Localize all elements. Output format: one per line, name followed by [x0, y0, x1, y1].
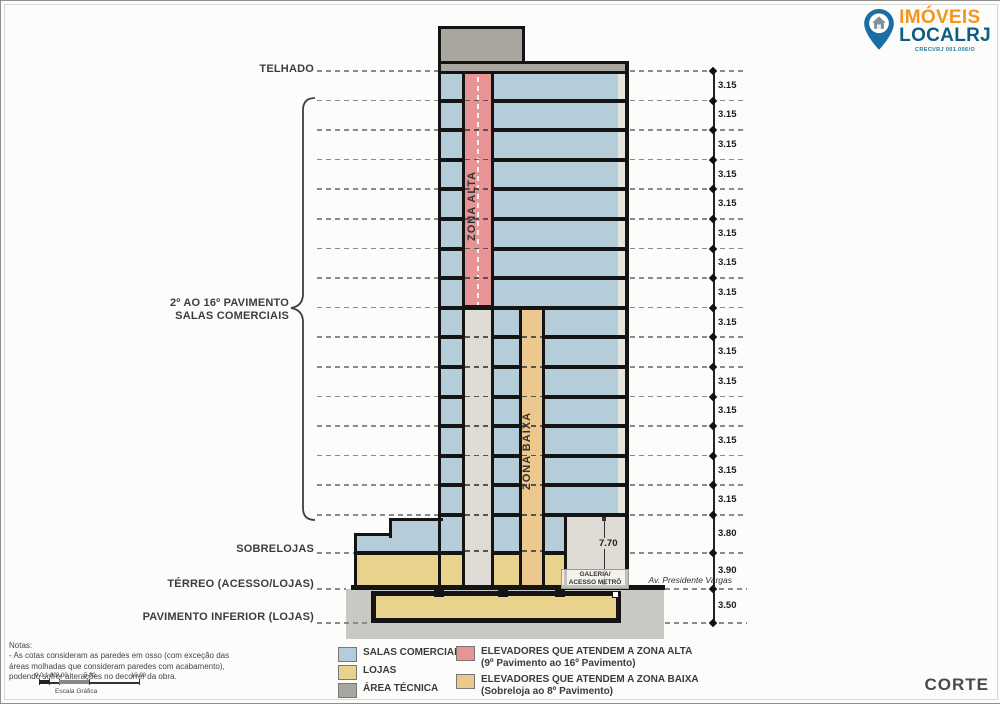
- legend-sub-zona-baixa: (Sobreloja ao 8º Pavimento): [481, 686, 699, 698]
- leader-line: [317, 552, 354, 554]
- slab-dash-shaft: [465, 277, 491, 279]
- legend-swatch-zona-baixa: [456, 674, 475, 689]
- dimension-label: 3.15: [718, 228, 750, 240]
- floor-slab: [545, 424, 625, 428]
- terreo-slab: [354, 551, 462, 555]
- leader-line: [630, 514, 747, 516]
- tower-right-wall: [625, 61, 629, 587]
- sobreloja-tower-fill: [441, 515, 564, 553]
- pavimento-inferior-box: [371, 591, 621, 623]
- floor-slab: [545, 483, 625, 487]
- floor-slab: [494, 513, 519, 517]
- section-drawing-sheet: IMÓVEIS LOCALRJ CRECI/RJ 001.006/O TELHA…: [0, 0, 1000, 704]
- scale-tick-2: 2.00: [56, 673, 68, 679]
- floor-slab: [545, 365, 625, 369]
- floor-slab: [441, 483, 462, 487]
- leader-line: [317, 70, 438, 72]
- leader-line: [317, 588, 346, 590]
- leader-line: [630, 218, 747, 220]
- leader-line: [630, 396, 747, 398]
- leader-line: [665, 622, 747, 624]
- legend-item-zona-baixa: ELEVADORES QUE ATENDEM A ZONA BAIXA (Sob…: [456, 674, 699, 698]
- floor-slab: [494, 276, 625, 280]
- dimension-label: 3.15: [718, 494, 750, 506]
- floor-slab: [494, 128, 625, 132]
- floor-slab: [441, 365, 462, 369]
- leader-line: [630, 129, 747, 131]
- scale-tick-1: 1.00: [45, 673, 57, 679]
- tower-left-wall: [438, 61, 441, 587]
- dimension-tick: [709, 67, 717, 75]
- label-terreo: TÉRREO (ACESSO/LOJAS): [121, 578, 314, 590]
- telhado-roof-slab: [438, 61, 629, 74]
- floor-slab: [494, 217, 625, 221]
- leader-line: [317, 396, 438, 398]
- floor-slab: [441, 99, 462, 103]
- leader-line: [317, 307, 438, 309]
- legend-sub-zona-alta: (9º Pavimento ao 16º Pavimento): [481, 658, 692, 670]
- dimension-label: 3.15: [718, 139, 750, 151]
- leader-line: [317, 188, 438, 190]
- dimension-label: 3.15: [718, 465, 750, 477]
- floor-slab: [441, 187, 462, 191]
- legend-swatch-area-tecnica: [338, 683, 357, 698]
- dimension-label: 3.15: [718, 376, 750, 388]
- dimension-label: 3.90: [718, 565, 750, 577]
- label-pavimentos-line1: 2º AO 16º PAVIMENTO: [121, 297, 289, 310]
- column-footing: [555, 590, 565, 597]
- leader-line: [630, 366, 747, 368]
- leader-line: [317, 159, 438, 161]
- floor-slab: [494, 158, 625, 162]
- legend-item-zona-alta: ELEVADORES QUE ATENDEM A ZONA ALTA (9º P…: [456, 646, 692, 670]
- legend-label-area-tecnica: ÁREA TÉCNICA: [363, 683, 438, 695]
- floor-slab: [441, 424, 462, 428]
- slab-dash-shaft: [522, 366, 542, 368]
- slab-dash-shaft: [465, 100, 491, 102]
- dimension-tick: [709, 452, 717, 460]
- floor-slab: [441, 454, 462, 458]
- floor-slab: [494, 483, 519, 487]
- floor-slab: [441, 335, 462, 339]
- galeria-dim-tick-top: [602, 517, 606, 521]
- leader-line: [317, 425, 438, 427]
- shaft-alta-right-wall: [491, 74, 494, 587]
- dimension-label: 3.15: [718, 80, 750, 92]
- leader-line: [630, 336, 747, 338]
- column-footing: [498, 590, 508, 597]
- floor-slab: [494, 335, 519, 339]
- leader-line: [317, 484, 438, 486]
- floor-slab: [545, 335, 625, 339]
- dimension-tick: [709, 511, 717, 519]
- dimension-label: 3.15: [718, 257, 750, 269]
- label-sobrelojas: SOBRELOJAS: [201, 543, 314, 555]
- sobreloja-step-upper: [392, 521, 441, 553]
- leader-line: [630, 159, 747, 161]
- dimension-tick: [709, 585, 717, 593]
- dimension-tick: [709, 392, 717, 400]
- leader-line: [317, 218, 438, 220]
- slab-dash-shaft: [465, 396, 491, 398]
- floor-slab: [494, 395, 519, 399]
- leader-line: [317, 100, 438, 102]
- slab-dash-shaft: [465, 425, 491, 427]
- dimension-label: 3.15: [718, 435, 750, 447]
- slab-dash-shaft: [465, 550, 491, 552]
- leader-line: [665, 588, 747, 590]
- floor-slab: [545, 395, 625, 399]
- street-label: Av. Presidente Vargas: [602, 575, 732, 585]
- label-pavimentos-line2: SALAS COMERCIAIS: [121, 310, 289, 323]
- leader-line: [317, 129, 438, 131]
- legend-label-lojas: LOJAS: [363, 665, 396, 677]
- dimension-tick: [709, 304, 717, 312]
- graphic-scale: 0.0 1.00 2.00 5.00 10.00 Escala Gráfica: [37, 673, 157, 697]
- label-pavimentos: 2º AO 16º PAVIMENTO SALAS COMERCIAIS: [121, 297, 289, 323]
- legend-swatch-lojas: [338, 665, 357, 680]
- legend-label-zona-alta: ELEVADORES QUE ATENDEM A ZONA ALTA: [481, 646, 692, 658]
- dimension-tick: [709, 363, 717, 371]
- dimension-tick: [709, 156, 717, 164]
- floor-slab: [494, 187, 625, 191]
- leader-line: [317, 248, 438, 250]
- dimension-label: 3.15: [718, 287, 750, 299]
- floor-slab: [441, 276, 462, 280]
- floor-slab: [441, 513, 462, 517]
- leader-line: [630, 484, 747, 486]
- slab-dash-shaft: [465, 514, 491, 516]
- dimension-tick: [709, 422, 717, 430]
- dimension-label: 3.15: [718, 198, 750, 210]
- elevator-shaft-lower-gray: [465, 307, 491, 587]
- leader-line: [630, 307, 747, 309]
- dimension-tick: [709, 244, 717, 252]
- legend-swatch-zona-alta: [456, 646, 475, 661]
- dimension-label: 3.15: [718, 169, 750, 181]
- dimension-label: 3.50: [718, 600, 750, 612]
- dimension-tick: [709, 185, 717, 193]
- dimension-tick: [709, 126, 717, 134]
- logo: IMÓVEIS LOCALRJ CRECI/RJ 001.006/O: [864, 9, 991, 53]
- dimension-tick: [709, 619, 717, 627]
- galeria-height-dim: 7.70: [597, 538, 620, 549]
- location-pin-icon: [864, 9, 894, 51]
- legend-swatch-salas-comerciais: [338, 647, 357, 662]
- terreo-slab: [545, 551, 564, 555]
- leader-line: [317, 622, 369, 624]
- area-tecnica-machine-room: [438, 26, 525, 64]
- dimension-line: [713, 69, 715, 625]
- leader-line: [630, 248, 747, 250]
- dimension-tick: [709, 549, 717, 557]
- notes-line2: áreas molhadas que consideram paredes co…: [9, 662, 239, 672]
- dimension-tick: [709, 96, 717, 104]
- floor-slab: [494, 99, 625, 103]
- dimension-label: 3.15: [718, 317, 750, 329]
- leader-line: [630, 70, 747, 72]
- dimension-tick: [709, 274, 717, 282]
- zona-baixa-shaft-label: ZONA BAIXA: [521, 381, 543, 521]
- legend-label-zona-baixa: ELEVADORES QUE ATENDEM A ZONA BAIXA: [481, 674, 699, 686]
- label-pavimento-inferior: PAVIMENTO INFERIOR (LOJAS): [101, 611, 314, 623]
- leader-line: [630, 100, 747, 102]
- leader-line: [317, 455, 438, 457]
- slab-dash-shaft: [465, 455, 491, 457]
- annex-left-wall: [354, 533, 357, 587]
- floor-slab: [545, 513, 625, 517]
- leader-line: [630, 188, 747, 190]
- logo-text-localrj: LOCALRJ: [899, 27, 991, 45]
- floor-slab: [494, 247, 625, 251]
- floor-slab: [441, 395, 462, 399]
- slab-dash-shaft: [465, 336, 491, 338]
- dimension-label: 3.80: [718, 528, 750, 540]
- leader-line: [630, 552, 747, 554]
- dimension-tick: [709, 481, 717, 489]
- dimension-label: 3.15: [718, 109, 750, 121]
- floor-slab: [494, 454, 519, 458]
- floor-slab: [441, 158, 462, 162]
- floors-bracket: [289, 96, 317, 524]
- column-footing: [434, 590, 444, 597]
- zona-transition-line: [462, 305, 494, 308]
- slab-dash-shaft: [522, 336, 542, 338]
- dimension-tick: [709, 333, 717, 341]
- leader-line: [630, 425, 747, 427]
- slab-dash-shaft: [465, 129, 491, 131]
- floor-slab: [494, 424, 519, 428]
- sheet-title: CORTE: [925, 675, 990, 695]
- slab-dash-shaft: [522, 550, 542, 552]
- scale-caption: Escala Gráfica: [55, 688, 97, 695]
- floor-slab: [545, 454, 625, 458]
- step-upper-top: [389, 518, 443, 521]
- label-telhado: TELHADO: [201, 63, 314, 75]
- terreo-slab: [494, 551, 519, 555]
- legend-item-area-tecnica: ÁREA TÉCNICA: [338, 683, 438, 698]
- dimension-label: 3.15: [718, 405, 750, 417]
- legend-item-salas: SALAS COMERCIAIS: [338, 647, 464, 662]
- slab-dash-shaft: [465, 484, 491, 486]
- floor-slab: [441, 247, 462, 251]
- leader-line: [317, 514, 438, 516]
- floor-slab: [441, 217, 462, 221]
- floor-slab: [494, 365, 519, 369]
- logo-creci: CRECI/RJ 001.006/O: [899, 47, 991, 53]
- dimension-label: 3.15: [718, 346, 750, 358]
- leader-line: [317, 366, 438, 368]
- step-lower-top: [354, 533, 392, 536]
- notes-title: Notas:: [9, 641, 239, 651]
- shaft-alta-left-wall: [462, 74, 465, 587]
- floor-slab: [441, 128, 462, 132]
- leader-line: [630, 455, 747, 457]
- notes-line1: - As cotas consideram as paredes em osso…: [9, 651, 239, 661]
- footing-detail: [612, 591, 619, 598]
- legend-item-lojas: LOJAS: [338, 665, 396, 680]
- dimension-tick: [709, 215, 717, 223]
- zona-alta-shaft-label: ZONA ALTA: [466, 141, 490, 271]
- leader-line: [630, 277, 747, 279]
- leader-line: [317, 277, 438, 279]
- slab-dash-shaft: [465, 366, 491, 368]
- legend-label-salas: SALAS COMERCIAIS: [363, 647, 464, 659]
- leader-line: [317, 336, 438, 338]
